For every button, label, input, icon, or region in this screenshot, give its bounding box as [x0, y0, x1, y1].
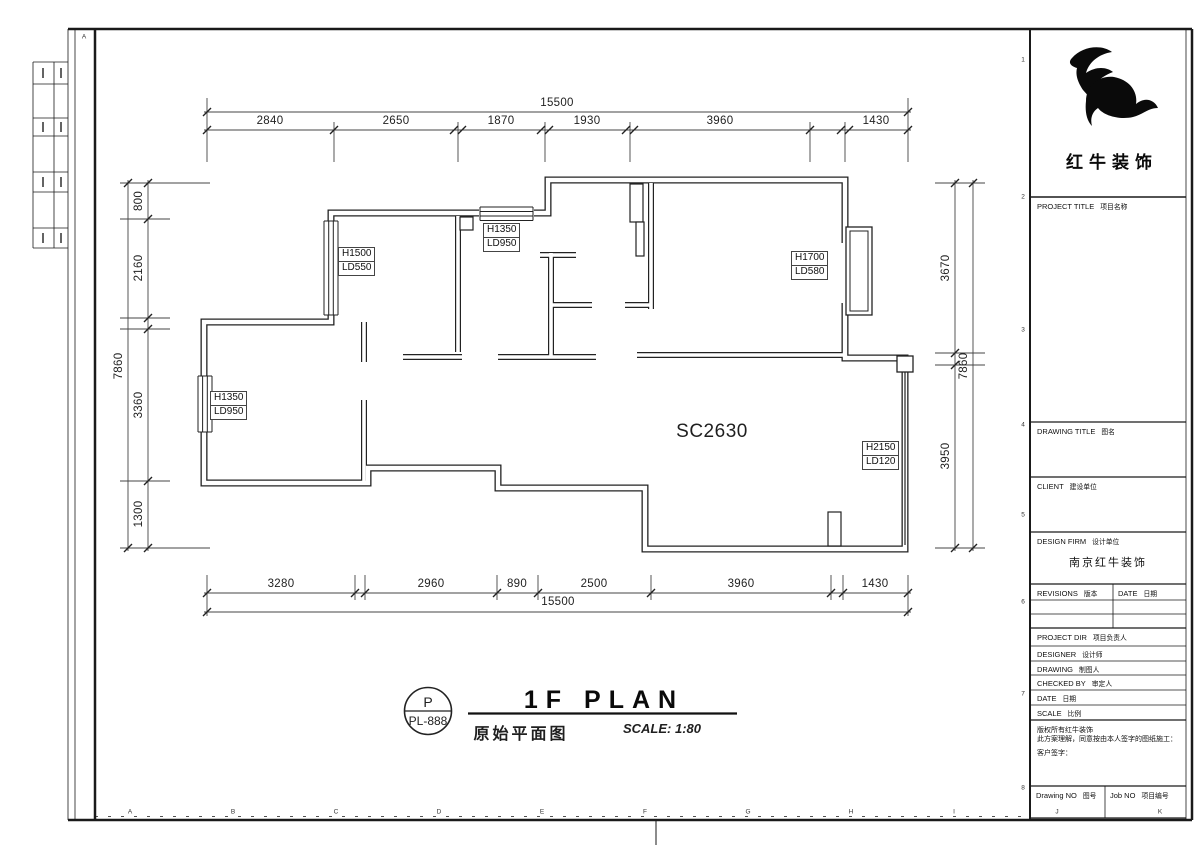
field-label-en: Drawing NO [1036, 791, 1077, 800]
grid-ref-corner: A [82, 34, 86, 41]
field-label-en: DATE [1037, 694, 1056, 703]
tag-line: LD550 [338, 261, 375, 276]
tag-line: H1500 [338, 247, 375, 262]
field-drawing-no: Drawing NO图号 [1036, 790, 1096, 800]
grid-ref-number: 7 [1021, 691, 1025, 698]
grid-ref-number: 1 [1021, 57, 1025, 64]
field-label-cn: 项目名称 [1100, 204, 1127, 211]
plan-title-cn: 原始平面图 [473, 720, 568, 744]
field-drawing-by: DRAWING制图人 [1037, 664, 1099, 674]
window-top [479, 206, 534, 221]
field-label-en: CLIENT [1037, 482, 1064, 491]
field-drawing-title: DRAWING TITLE图名 [1037, 426, 1115, 436]
window-tag: H1350 LD950 [483, 223, 520, 252]
binding-strip [33, 62, 68, 248]
field-label-en: REVISIONS [1037, 589, 1078, 598]
plan-title-en: 1F PLAN [524, 686, 684, 715]
dim-top-seg: 1430 [863, 115, 890, 127]
grid-ref-number: 4 [1021, 422, 1025, 429]
field-label-cn: 建设单位 [1070, 484, 1097, 491]
sheet-code: P [423, 694, 432, 710]
grid-ref-number: 5 [1021, 512, 1025, 519]
dim-right-seg: 3670 [940, 255, 952, 282]
dim-left-seg: 1300 [133, 501, 145, 528]
field-label-cn: 项目编号 [1141, 793, 1168, 800]
tag-line: LD950 [483, 237, 520, 252]
sheet-number: PL-888 [409, 714, 448, 728]
field-client: CLIENT建设单位 [1037, 481, 1097, 491]
field-label-en: DRAWING [1037, 665, 1073, 674]
grid-ref-letter: J [1055, 809, 1058, 816]
field-label-cn: 日期 [1062, 696, 1076, 703]
grid-ref-letter: A [128, 809, 132, 816]
tag-line: H1350 [210, 391, 247, 406]
dim-left-seg: 3360 [133, 392, 145, 419]
dim-top-seg: 2650 [383, 115, 410, 127]
field-label-en: DESIGN FIRM [1037, 537, 1086, 546]
tag-line: LD950 [210, 405, 247, 420]
dim-top-seg: 2840 [257, 115, 284, 127]
grid-ref-letter: C [334, 809, 339, 816]
grid-ref-letter: B [231, 809, 235, 816]
dim-top-seg: 1870 [488, 115, 515, 127]
grid-ref-number: 3 [1021, 327, 1025, 334]
field-scale: SCALE比例 [1037, 708, 1081, 718]
field-revisions: REVISIONS版本 [1037, 588, 1097, 598]
grid-ref-letter: E [540, 809, 544, 816]
field-checked-by: CHECKED BY审定人 [1037, 678, 1112, 688]
window-tag: H1500 LD550 [338, 247, 375, 276]
field-label-cn: 日期 [1143, 591, 1157, 598]
window-tag: H1700 LD580 [791, 251, 828, 280]
field-label-cn: 制图人 [1079, 667, 1099, 674]
bull-logo [1070, 47, 1158, 126]
field-project-dir: PROJECT DIR项目负责人 [1037, 632, 1127, 642]
tag-line: H1350 [483, 223, 520, 238]
field-job-no: Job NO项目编号 [1110, 790, 1169, 800]
grid-ref-number: 8 [1021, 785, 1025, 792]
field-label-en: PROJECT TITLE [1037, 202, 1094, 211]
field-label-cn: 项目负责人 [1093, 635, 1127, 642]
field-label-en: DATE [1118, 589, 1137, 598]
field-label-en: DRAWING TITLE [1037, 427, 1095, 436]
grid-ref-letter: H [849, 809, 854, 816]
tag-line: LD120 [862, 455, 899, 470]
field-designer: DESIGNER设计师 [1037, 649, 1103, 659]
field-label-cn: 设计师 [1082, 652, 1102, 659]
field-label-cn: 图号 [1083, 793, 1097, 800]
grid-ref-letter: I [953, 809, 955, 816]
field-label-cn: 版本 [1084, 591, 1098, 598]
grid-ref-letter: G [745, 809, 750, 816]
dim-bottom-seg: 1430 [862, 578, 889, 590]
dim-bottom-seg: 3960 [728, 578, 755, 590]
field-label-cn: 审定人 [1092, 681, 1112, 688]
brand-name: 红牛装饰 [1066, 148, 1158, 173]
plan-scale-note: SCALE: 1:80 [623, 721, 701, 736]
field-label-en: CHECKED BY [1037, 679, 1086, 688]
dim-left-total: 7860 [113, 353, 125, 380]
agreement-note: 此方案理解，同意按由本人签字的图纸施工： [1037, 734, 1177, 744]
field-label-en: Job NO [1110, 791, 1135, 800]
floor-plan-walls [204, 180, 905, 549]
field-label-en: PROJECT DIR [1037, 633, 1087, 642]
cad-sheet: 15500 2840 2650 1870 1930 3960 1430 3280… [0, 0, 1200, 845]
grid-ref-number: 6 [1021, 599, 1025, 606]
window-tag: H2150 LD120 [862, 441, 899, 470]
window-left-upper [323, 221, 338, 315]
field-date: DATE日期 [1037, 693, 1076, 703]
window-tag: H1350 LD950 [210, 391, 247, 420]
dim-bottom-seg: 890 [507, 578, 527, 590]
grid-ref-letter: F [643, 809, 647, 816]
dim-top-seg: 3960 [707, 115, 734, 127]
grid-ref-number: 2 [1021, 194, 1025, 201]
field-label-en: DESIGNER [1037, 650, 1076, 659]
dim-bottom-seg: 2500 [581, 578, 608, 590]
dim-bottom-total: 15500 [541, 596, 574, 608]
field-rev-date: DATE日期 [1118, 588, 1157, 598]
dim-bottom-seg: 3280 [268, 578, 295, 590]
field-label-cn: 设计单位 [1092, 539, 1119, 546]
dim-top-seg: 1930 [574, 115, 601, 127]
field-label-en: SCALE [1037, 709, 1062, 718]
field-label-cn: 图名 [1101, 429, 1115, 436]
dim-left-seg: 2160 [133, 255, 145, 282]
dim-right-seg: 3950 [940, 443, 952, 470]
tag-line: LD580 [791, 265, 828, 280]
room-label-sc2630: SC2630 [676, 421, 748, 443]
field-project-title: PROJECT TITLE项目名称 [1037, 201, 1127, 211]
field-label-cn: 比例 [1068, 711, 1082, 718]
tag-line: H1700 [791, 251, 828, 266]
signature-note: 客户签字： [1037, 748, 1072, 758]
field-design-firm: DESIGN FIRM设计单位 [1037, 536, 1119, 546]
tag-line: H2150 [862, 441, 899, 456]
dim-left-seg: 800 [133, 191, 145, 211]
grid-ref-letter: D [437, 809, 442, 816]
dim-bottom-seg: 2960 [418, 578, 445, 590]
grid-ref-letter: K [1158, 809, 1162, 816]
dim-right-total: 7860 [958, 353, 970, 380]
dim-top-total: 15500 [540, 97, 573, 109]
design-firm-value: 南京红牛装饰 [1069, 554, 1147, 570]
